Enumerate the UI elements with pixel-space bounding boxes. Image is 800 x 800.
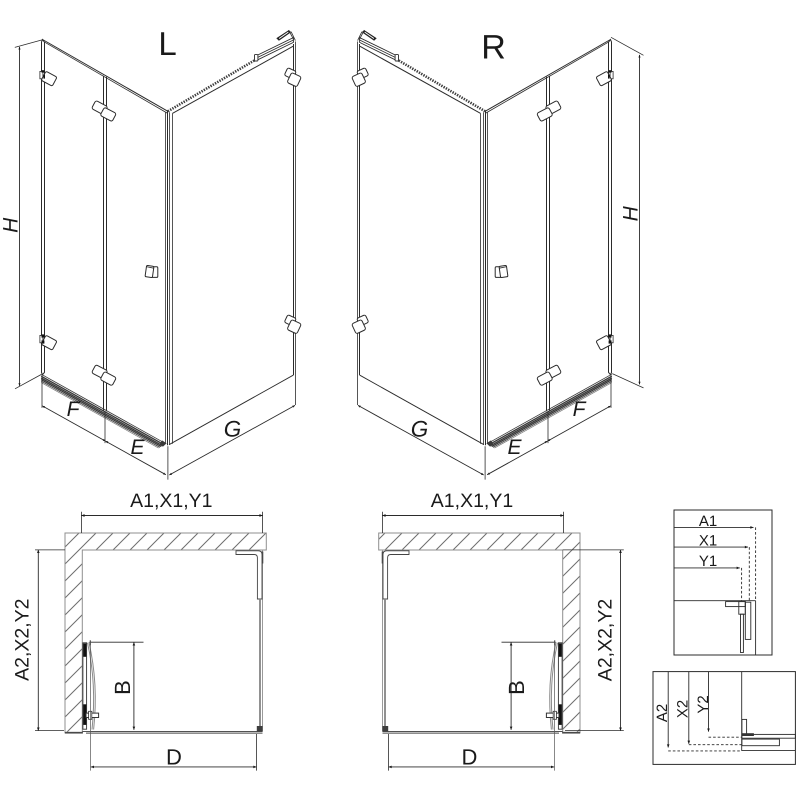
svg-text:H: H [0, 217, 23, 233]
svg-text:A2,X2,Y2: A2,X2,Y2 [11, 599, 33, 681]
svg-text:G: G [224, 417, 242, 442]
svg-text:D: D [462, 745, 478, 770]
svg-text:A1,X1,Y1: A1,X1,Y1 [130, 490, 212, 512]
svg-text:X1: X1 [699, 533, 717, 550]
svg-text:E: E [507, 436, 522, 459]
svg-text:L: L [158, 25, 176, 62]
svg-text:A1,X1,Y1: A1,X1,Y1 [431, 490, 513, 512]
svg-text:H: H [620, 205, 643, 221]
svg-text:Y2: Y2 [695, 695, 712, 713]
svg-text:E: E [130, 436, 145, 459]
svg-text:G: G [411, 417, 429, 442]
svg-text:F: F [573, 398, 587, 421]
svg-text:A2,X2,Y2: A2,X2,Y2 [595, 599, 617, 681]
svg-text:D: D [166, 745, 182, 770]
svg-text:B: B [110, 680, 135, 695]
svg-text:Y1: Y1 [699, 553, 717, 570]
svg-text:X2: X2 [675, 700, 692, 718]
svg-text:A2: A2 [654, 704, 671, 722]
svg-text:A1: A1 [699, 513, 717, 530]
svg-text:F: F [67, 398, 81, 421]
svg-text:B: B [504, 680, 529, 695]
svg-text:R: R [481, 29, 506, 67]
